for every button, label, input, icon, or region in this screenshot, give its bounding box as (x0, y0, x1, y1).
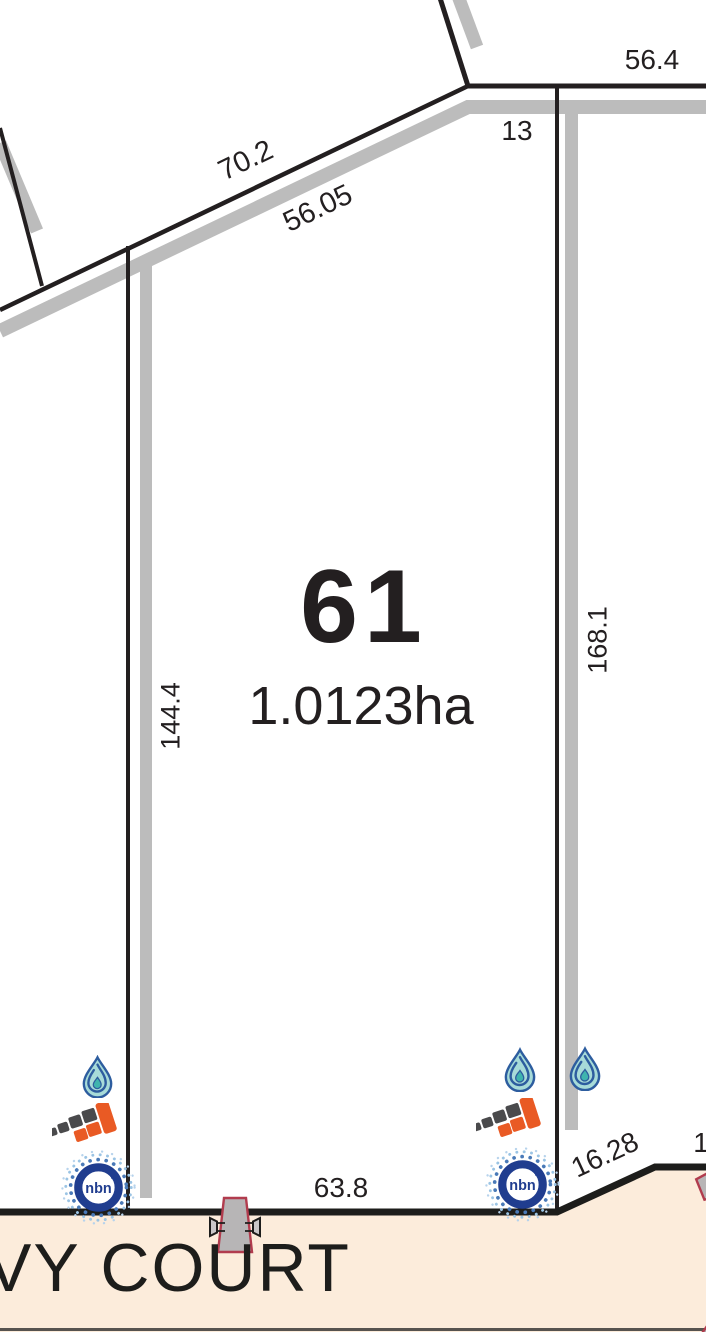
dim-label-partial: 1 (693, 1129, 706, 1157)
brick-tiles-icon (469, 1095, 541, 1146)
water-drop-icon (506, 1050, 534, 1091)
street-name: VY COURT (0, 1234, 351, 1302)
subdivision-plan: nbn ™ (0, 0, 706, 1332)
dim-label-63-8: 63.8 (314, 1174, 369, 1202)
dim-label-56-4: 56.4 (625, 46, 680, 74)
boundary-far-left (0, 128, 42, 286)
water-drop-icon (84, 1057, 111, 1097)
service-line-top (458, 0, 477, 47)
dim-label-168-1: 168.1 (585, 606, 612, 674)
dim-label-144-4: 144.4 (158, 682, 185, 750)
boundary-northwest (0, 86, 468, 310)
lot-area: 1.0123ha (248, 679, 473, 733)
dim-label-13: 13 (501, 117, 532, 145)
lot-number: 61 (300, 555, 428, 659)
brick-tiles-icon (45, 1100, 117, 1151)
